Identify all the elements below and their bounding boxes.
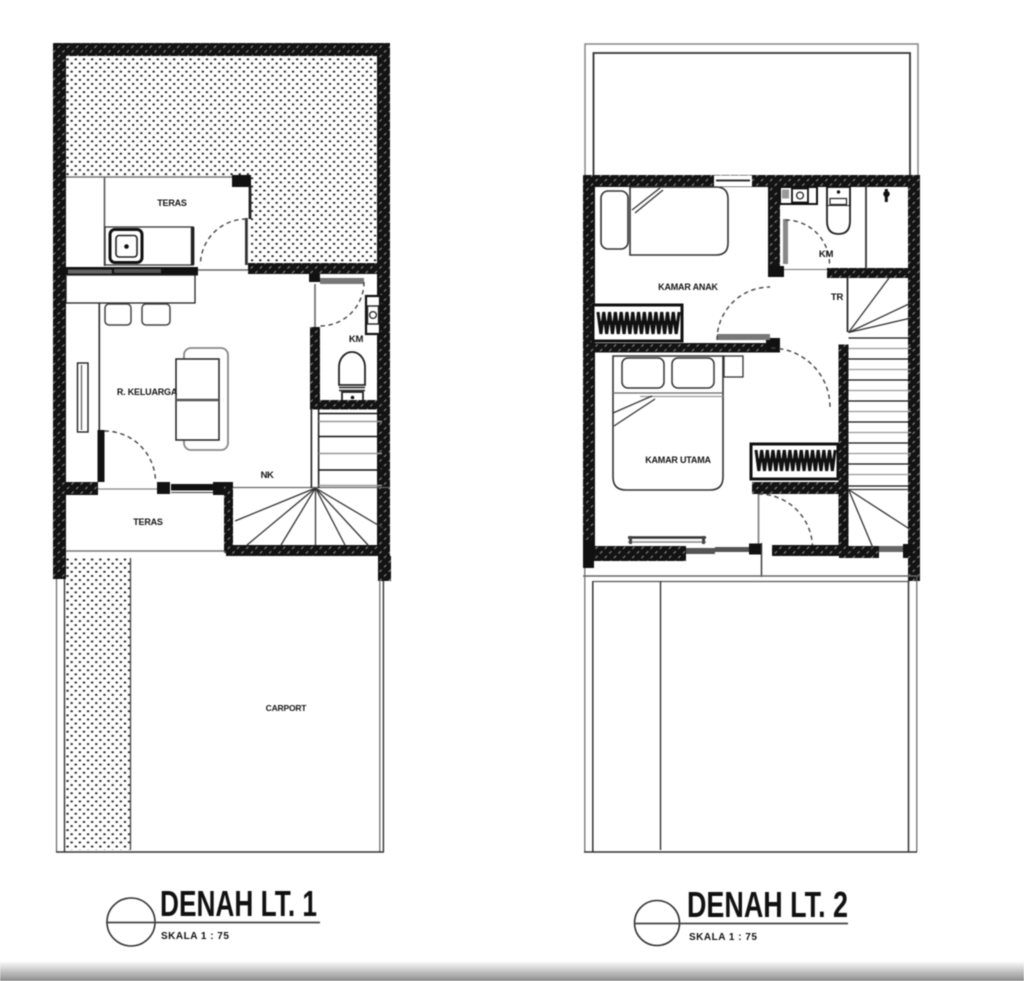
svg-text:CARPORT: CARPORT (266, 703, 308, 713)
svg-text:TR: TR (831, 292, 844, 303)
svg-text:KAMAR ANAK: KAMAR ANAK (658, 282, 718, 292)
svg-text:KAMAR UTAMA: KAMAR UTAMA (645, 455, 711, 465)
svg-text:R. KELUARGA: R. KELUARGA (117, 387, 178, 397)
svg-text:SKALA 1 : 75: SKALA 1 : 75 (689, 932, 757, 943)
svg-text:DENAH LT. 2: DENAH LT. 2 (687, 884, 848, 925)
svg-text:KM: KM (349, 334, 364, 345)
svg-text:KM: KM (819, 249, 834, 260)
svg-text:SKALA 1 : 75: SKALA 1 : 75 (161, 931, 229, 942)
svg-text:DENAH LT. 1: DENAH LT. 1 (160, 883, 317, 924)
svg-text:TERAS: TERAS (133, 517, 163, 527)
svg-text:NK: NK (261, 470, 274, 481)
svg-text:TERAS: TERAS (157, 198, 187, 208)
